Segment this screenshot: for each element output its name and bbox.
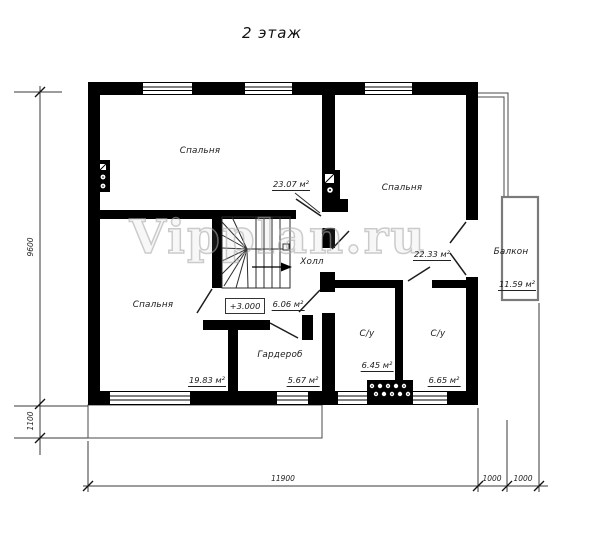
area-label-balcony: 11.59 м² bbox=[498, 279, 536, 291]
room-label-hall: Холл bbox=[300, 257, 323, 267]
room-label-bath-left: С/у bbox=[360, 329, 375, 339]
vent-block-bottom bbox=[367, 380, 413, 403]
elevation-mark: +3.000 bbox=[225, 298, 265, 314]
dim-left-height: 9600 bbox=[26, 237, 36, 256]
floor-plan-drawing bbox=[0, 0, 600, 535]
leader-line bbox=[295, 193, 320, 213]
area-label-bedroom-tl: 23.07 м² bbox=[272, 179, 310, 191]
room-label-bath-right: С/у bbox=[431, 329, 446, 339]
area-label-bedroom-bl: 19.83 м² bbox=[188, 375, 226, 387]
dim-left-porch: 1100 bbox=[26, 411, 36, 430]
interior-walls bbox=[88, 95, 466, 391]
winder-treads bbox=[222, 217, 248, 288]
room-label-wardrobe: Гардероб bbox=[257, 350, 302, 360]
area-label-wardrobe: 5.67 м² bbox=[287, 375, 320, 387]
room-label-balcony: Балкон bbox=[494, 247, 529, 257]
dim-bottom-width: 11900 bbox=[271, 474, 295, 484]
vent-block-middle bbox=[322, 170, 340, 200]
room-label-bedroom-bl: Спальня bbox=[133, 300, 174, 310]
vent-block-left bbox=[97, 160, 110, 192]
area-label-bath-left: 6.45 м² bbox=[361, 360, 394, 372]
dim-balcony-2: 1000 bbox=[513, 474, 532, 484]
floor-plan-canvas: 2 этаж bbox=[0, 0, 600, 535]
staircase bbox=[222, 217, 290, 288]
area-label-bath-right: 6.65 м² bbox=[428, 375, 461, 387]
balcony-outline bbox=[478, 93, 508, 197]
room-label-bedroom-tr: Спальня bbox=[382, 183, 423, 193]
room-label-bedroom-tl: Спальня bbox=[180, 146, 221, 156]
area-label-bedroom-tr: 22.33 м² bbox=[413, 249, 451, 261]
porch-outline bbox=[88, 405, 322, 438]
area-label-hall: 6.06 м² bbox=[272, 299, 305, 311]
dim-balcony-1: 1000 bbox=[482, 474, 501, 484]
